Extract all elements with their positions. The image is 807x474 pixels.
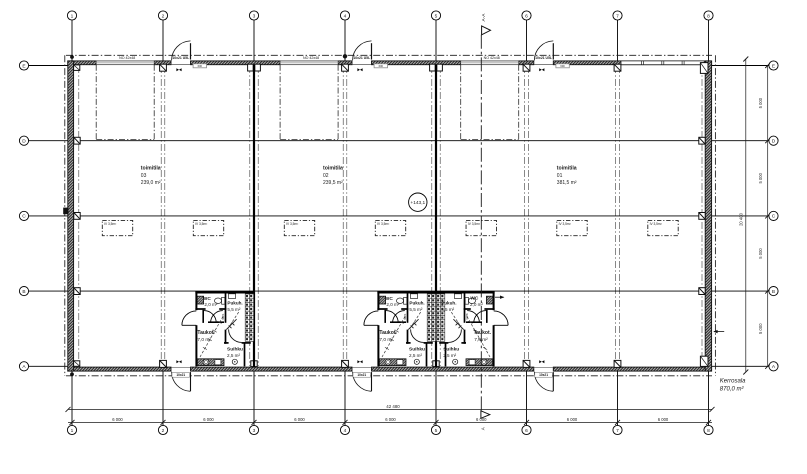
svg-text:600: 600: [198, 64, 203, 68]
svg-text:2,5 m²: 2,5 m²: [443, 353, 456, 358]
svg-text:2,0 m²: 2,0 m²: [204, 302, 217, 307]
svg-text:2,5 m²: 2,5 m²: [409, 353, 422, 358]
svg-text:1: 1: [71, 428, 74, 434]
svg-text:20 400: 20 400: [739, 212, 744, 225]
svg-text:Kerrosala: Kerrosala: [720, 379, 746, 385]
svg-text:Suihku: Suihku: [443, 346, 459, 352]
svg-text:600: 600: [560, 64, 565, 68]
svg-text:02: 02: [323, 173, 329, 179]
svg-text:IV 3,5m²: IV 3,5m²: [468, 222, 480, 226]
svg-text:C: C: [22, 214, 26, 220]
svg-text:IV 3,5m²: IV 3,5m²: [104, 222, 116, 226]
svg-text:Suihku: Suihku: [227, 346, 243, 352]
svg-text:6 000: 6 000: [385, 417, 396, 422]
svg-text:6 000: 6 000: [658, 417, 669, 422]
svg-text:NO 42x48: NO 42x48: [119, 56, 135, 60]
svg-text:10x21: 10x21: [176, 373, 185, 377]
svg-text:D: D: [772, 139, 776, 145]
svg-text:6 000: 6 000: [112, 417, 123, 422]
svg-text:5: 5: [435, 13, 438, 19]
svg-text:7: 7: [616, 13, 619, 19]
svg-text:C: C: [772, 214, 776, 220]
svg-text:5,5 m²: 5,5 m²: [409, 307, 422, 312]
svg-text:2,5 m²: 2,5 m²: [227, 353, 240, 358]
svg-text:6: 6: [525, 13, 528, 19]
svg-text:Pukuh.: Pukuh.: [227, 301, 242, 306]
svg-text:NO 42x48: NO 42x48: [303, 56, 319, 60]
svg-text:6 000: 6 000: [567, 417, 578, 422]
svg-text:5,5 m²: 5,5 m²: [227, 307, 240, 312]
svg-text:E: E: [772, 63, 775, 69]
svg-text:2: 2: [162, 13, 165, 19]
svg-text:01: 01: [557, 173, 563, 179]
svg-text:381,5 m²: 381,5 m²: [557, 180, 577, 186]
svg-text:7,0 m²: 7,0 m²: [379, 337, 393, 343]
svg-text:6 000: 6 000: [294, 417, 305, 422]
svg-text:6: 6: [525, 428, 528, 434]
svg-text:toimitila: toimitila: [141, 165, 161, 171]
svg-text:8: 8: [707, 428, 710, 434]
svg-text:3: 3: [253, 428, 256, 434]
svg-text:10x21 U5L: 10x21 U5L: [353, 56, 370, 60]
svg-text:Pukuh.: Pukuh.: [409, 301, 424, 306]
svg-text:WC: WC: [470, 296, 479, 302]
svg-text:Taukot.: Taukot.: [379, 330, 397, 336]
svg-text:IV 3,5m²: IV 3,5m²: [377, 222, 389, 226]
svg-text:4: 4: [344, 428, 347, 434]
svg-text:A: A: [480, 427, 485, 430]
svg-text:5,5 m²: 5,5 m²: [441, 307, 454, 312]
svg-text:IV 3,5m²: IV 3,5m²: [195, 222, 207, 226]
svg-text:5: 5: [435, 428, 438, 434]
svg-text:239,5 m²: 239,5 m²: [323, 180, 343, 186]
svg-text:B: B: [22, 289, 25, 295]
svg-text:IV 3,5m²: IV 3,5m²: [650, 222, 662, 226]
svg-text:10x21: 10x21: [357, 373, 366, 377]
svg-text:6 000: 6 000: [203, 417, 214, 422]
svg-text:B: B: [772, 289, 775, 295]
svg-text:1: 1: [71, 13, 74, 19]
svg-text:2,0 m²: 2,0 m²: [386, 302, 399, 307]
svg-text:8: 8: [707, 13, 710, 19]
svg-text:4: 4: [344, 13, 347, 19]
svg-text:toimitila: toimitila: [557, 165, 577, 171]
svg-text:600: 600: [379, 64, 384, 68]
svg-text:IV 3,5m²: IV 3,5m²: [286, 222, 298, 226]
svg-text:Taukot.: Taukot.: [474, 330, 492, 336]
svg-text:42 480: 42 480: [386, 404, 400, 409]
svg-text:7: 7: [616, 428, 619, 434]
svg-text:D: D: [22, 139, 26, 145]
svg-text:10x21 U5L: 10x21 U5L: [172, 56, 189, 60]
svg-text:870,0 m²: 870,0 m²: [720, 387, 745, 393]
svg-text:5 000: 5 000: [758, 323, 763, 334]
svg-text:2: 2: [162, 428, 165, 434]
svg-text:5 000: 5 000: [758, 172, 763, 183]
svg-text:03: 03: [141, 173, 147, 179]
svg-text:10x21: 10x21: [539, 373, 548, 377]
svg-text:5 000: 5 000: [758, 248, 763, 259]
svg-text:+143,1: +143,1: [410, 200, 425, 206]
svg-text:7,0 m²: 7,0 m²: [197, 337, 211, 343]
svg-text:E: E: [22, 63, 25, 69]
svg-text:IV 3,5m²: IV 3,5m²: [559, 222, 571, 226]
svg-text:Suihku: Suihku: [409, 346, 425, 352]
svg-text:239,0 m²: 239,0 m²: [141, 180, 161, 186]
svg-text:10x21 U5L: 10x21 U5L: [535, 56, 552, 60]
svg-text:toimitila: toimitila: [323, 165, 343, 171]
svg-text:Taukot.: Taukot.: [197, 330, 215, 336]
svg-text:Pukuh.: Pukuh.: [441, 301, 456, 306]
svg-text:NO 42x48: NO 42x48: [484, 56, 500, 60]
svg-text:A-A: A-A: [481, 13, 487, 22]
svg-text:3: 3: [253, 13, 256, 19]
svg-text:5 000: 5 000: [758, 97, 763, 108]
